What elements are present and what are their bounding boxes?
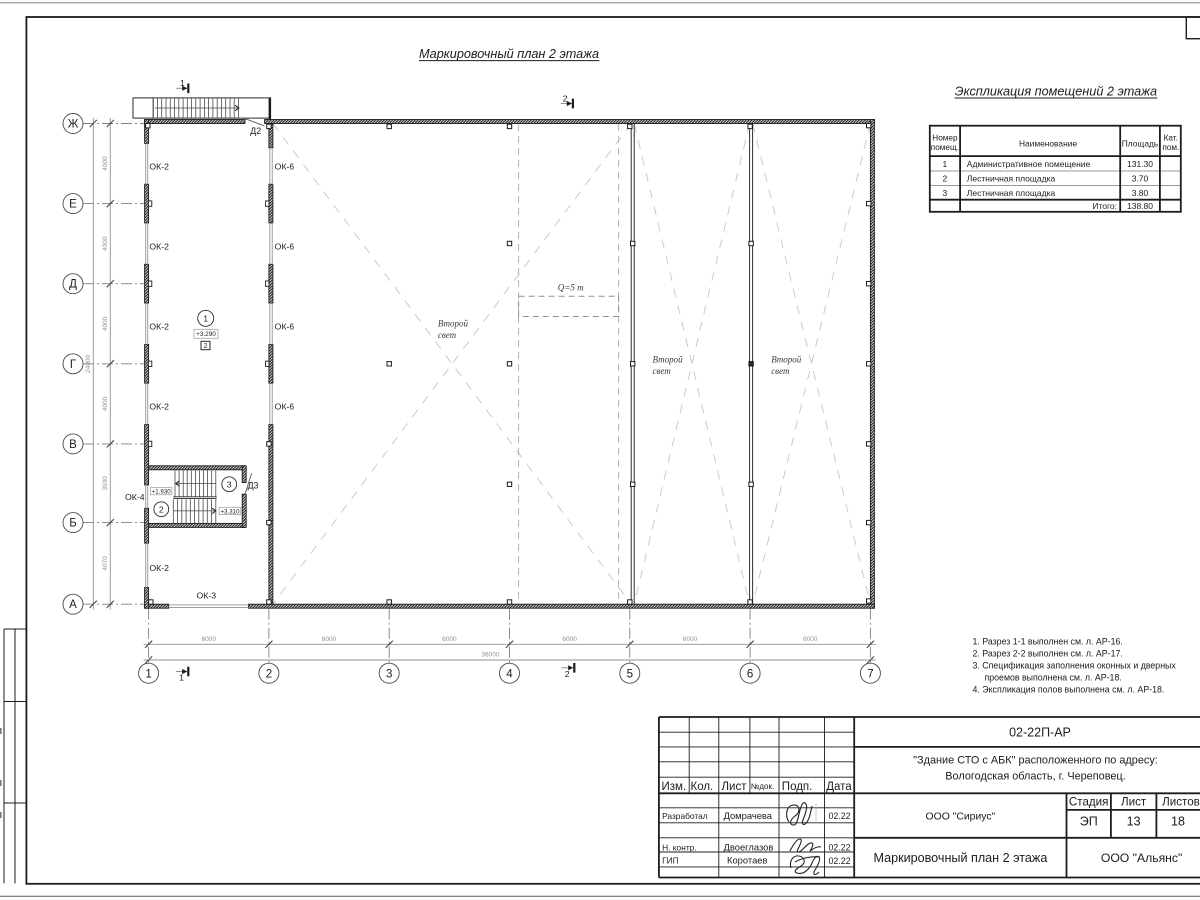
svg-text:4000: 4000 (102, 316, 109, 331)
svg-text:ОК-6: ОК-6 (275, 241, 295, 251)
svg-text:Административное помещение: Административное помещение (967, 159, 1091, 169)
svg-text:3. Спецификация заполнения око: 3. Спецификация заполнения оконных и две… (973, 661, 1177, 671)
svg-text:помещ.: помещ. (931, 143, 959, 152)
svg-text:3: 3 (943, 188, 948, 198)
svg-text:свет: свет (438, 330, 457, 340)
svg-text:4: 4 (506, 668, 513, 680)
svg-text:ГИП: ГИП (662, 856, 679, 866)
svg-text:Е: Е (69, 199, 77, 211)
svg-text:Площадь: Площадь (1122, 138, 1159, 148)
svg-text:02.22: 02.22 (829, 856, 851, 866)
svg-text:4. Экспликация полов выполнена: 4. Экспликация полов выполнена см. л. АР… (973, 685, 1165, 695)
svg-text:Ж: Ж (68, 119, 79, 131)
svg-text:Лестничная площадка: Лестничная площадка (967, 174, 1056, 184)
svg-text:№док.: №док. (751, 782, 774, 791)
svg-text:Номер: Номер (932, 133, 958, 142)
svg-text:Домрачева: Домрачева (724, 810, 773, 821)
svg-text:+1.930: +1.930 (152, 489, 172, 496)
svg-text:6000: 6000 (803, 636, 818, 643)
svg-text:пом.: пом. (1162, 143, 1179, 152)
svg-text:1: 1 (203, 314, 208, 324)
svg-text:Коротаев: Коротаев (727, 855, 768, 866)
svg-text:3: 3 (386, 668, 392, 680)
svg-text:Кат.: Кат. (1164, 133, 1178, 142)
svg-text:1: 1 (145, 668, 151, 680)
svg-text:02.22: 02.22 (829, 843, 851, 853)
svg-text:Стадия: Стадия (1069, 795, 1109, 808)
svg-text:Д2: Д2 (250, 126, 261, 136)
svg-text:ОК-2: ОК-2 (149, 563, 169, 573)
svg-text:ОК-6: ОК-6 (275, 161, 295, 171)
svg-text:3930: 3930 (102, 476, 109, 491)
svg-text:3: 3 (227, 479, 232, 489)
svg-text:4070: 4070 (102, 556, 109, 571)
svg-text:3.80: 3.80 (1132, 188, 1149, 198)
svg-text:Д: Д (69, 279, 77, 291)
svg-text:Маркировочный план 2 этажа: Маркировочный план 2 этажа (419, 47, 599, 61)
svg-text:6000: 6000 (442, 636, 457, 643)
svg-text:2: 2 (204, 343, 208, 350)
svg-text:ОК-2: ОК-2 (149, 241, 169, 251)
svg-text:131.30: 131.30 (1127, 159, 1153, 169)
svg-text:Q=5 т: Q=5 т (558, 283, 584, 293)
svg-text:Д3: Д3 (248, 480, 259, 490)
svg-text:6000: 6000 (202, 636, 217, 643)
svg-text:5: 5 (627, 668, 633, 680)
svg-text:6: 6 (747, 668, 753, 680)
svg-text:Подп.: Подп. (782, 781, 813, 793)
svg-text:"Здание СТО с АБК" расположенн: "Здание СТО с АБК" расположенного по адр… (913, 755, 1158, 767)
svg-text:Изм.: Изм. (662, 781, 687, 793)
svg-text:1. Разрез 1-1 выполнен см. л.: 1. Разрез 1-1 выполнен см. л. АР-16. (973, 636, 1123, 646)
svg-text:6000: 6000 (322, 636, 337, 643)
svg-text:Двоеглазов: Двоеглазов (724, 841, 774, 852)
svg-text:ОК-6: ОК-6 (275, 321, 295, 331)
svg-text:ОК-2: ОК-2 (149, 161, 169, 171)
svg-text:2: 2 (159, 504, 164, 514)
svg-text:Кол.: Кол. (691, 781, 714, 793)
svg-text:ЭП: ЭП (1080, 815, 1098, 829)
svg-text:свет: свет (771, 366, 790, 376)
svg-text:ОК-6: ОК-6 (275, 401, 295, 411)
svg-text:ОК-2: ОК-2 (149, 321, 169, 331)
svg-text:Листов: Листов (1162, 795, 1200, 808)
svg-text:Разработал: Разработал (662, 811, 708, 821)
svg-text:4000: 4000 (102, 156, 109, 171)
svg-text:Второй: Второй (653, 355, 684, 365)
svg-text:4000: 4000 (102, 236, 109, 251)
svg-text:3.70: 3.70 (1132, 174, 1149, 184)
svg-text:Лестничная площадка: Лестничная площадка (967, 188, 1056, 198)
svg-text:24000: 24000 (85, 354, 92, 372)
svg-text:Вологодская область, г. Черепо: Вологодская область, г. Череповец. (945, 771, 1125, 783)
svg-text:Лист: Лист (1121, 795, 1147, 808)
svg-text:Г: Г (70, 359, 77, 371)
svg-text:7: 7 (867, 668, 873, 680)
svg-text:138.80: 138.80 (1127, 201, 1153, 211)
svg-text:Второй: Второй (438, 318, 469, 328)
svg-text:ООО "Сириус": ООО "Сириус" (926, 812, 996, 823)
svg-text:Н. контр.: Н. контр. (662, 843, 697, 853)
svg-text:+3.290: +3.290 (196, 331, 216, 338)
svg-text:Маркировочный план 2 этажа: Маркировочный план 2 этажа (873, 851, 1047, 865)
svg-text:2: 2 (565, 669, 570, 679)
svg-text:проемов выполнена см. л. АР-18: проемов выполнена см. л. АР-18. (985, 673, 1122, 683)
svg-text:1: 1 (179, 673, 184, 683)
svg-text:1: 1 (943, 159, 948, 169)
svg-text:+3.310: +3.310 (220, 508, 240, 515)
svg-text:Лист: Лист (722, 781, 748, 793)
svg-text:ОК-2: ОК-2 (149, 401, 169, 411)
svg-text:Наименование: Наименование (1019, 138, 1077, 148)
svg-text:13: 13 (1127, 815, 1141, 829)
svg-text:Дата: Дата (826, 781, 852, 793)
svg-text:Б: Б (69, 518, 77, 530)
svg-text:2. Разрез 2-2 выполнен см. л.: 2. Разрез 2-2 выполнен см. л. АР-17. (973, 648, 1123, 658)
svg-text:02-22П-АР: 02-22П-АР (1009, 726, 1071, 740)
svg-text:А: А (69, 599, 77, 611)
svg-text:Экспликация помещений 2 этажа: Экспликация помещений 2 этажа (955, 84, 1157, 98)
svg-text:2: 2 (266, 668, 272, 680)
svg-text:ООО "Альянс": ООО "Альянс" (1101, 851, 1183, 865)
svg-text:4000: 4000 (102, 396, 109, 411)
svg-text:Итого:: Итого: (1092, 201, 1117, 211)
svg-text:Второй: Второй (771, 355, 802, 365)
svg-text:36000: 36000 (481, 652, 499, 659)
svg-text:ОК-3: ОК-3 (197, 590, 217, 600)
svg-text:2: 2 (943, 174, 948, 184)
svg-text:6000: 6000 (562, 636, 577, 643)
svg-text:свет: свет (653, 366, 672, 376)
svg-text:6000: 6000 (683, 636, 698, 643)
svg-text:ОК-4: ОК-4 (125, 492, 145, 502)
svg-text:02.22: 02.22 (829, 811, 851, 821)
svg-text:18: 18 (1171, 815, 1185, 829)
svg-text:В: В (69, 439, 77, 451)
